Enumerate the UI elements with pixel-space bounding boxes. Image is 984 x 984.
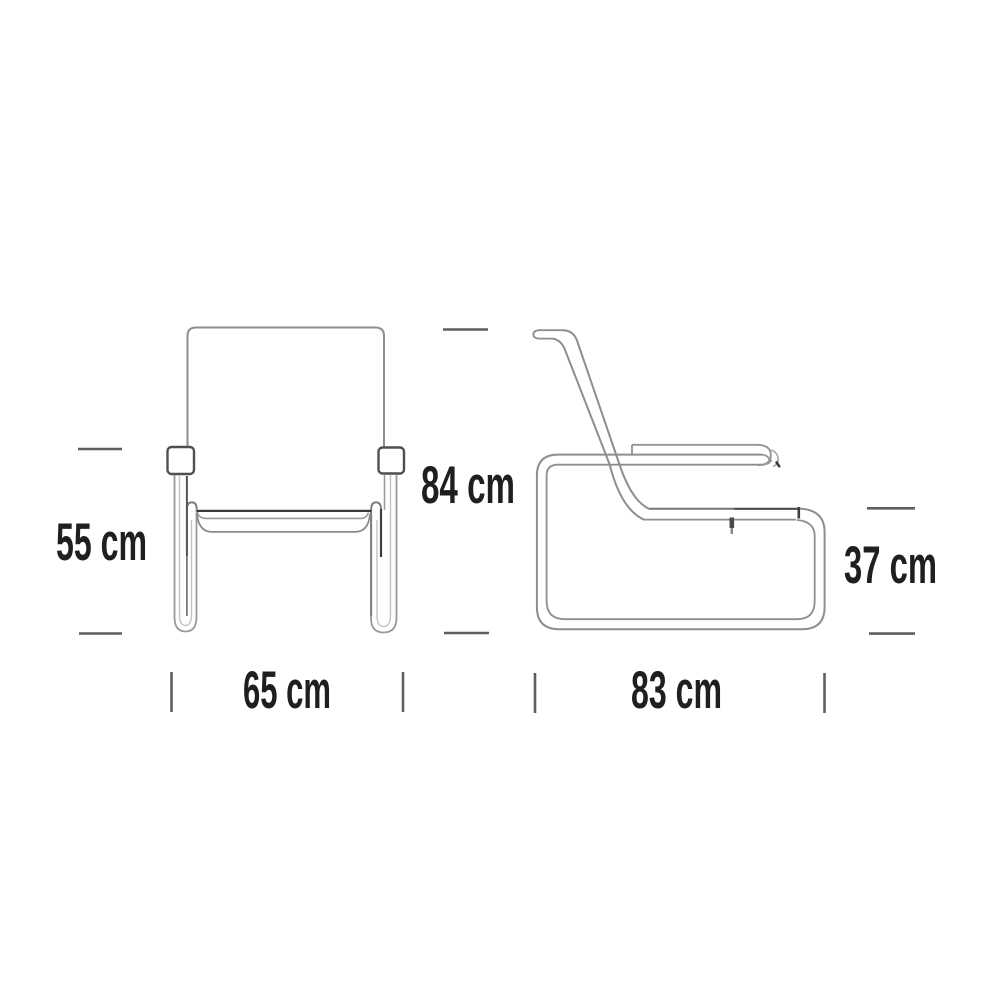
- svg-text:84 cm: 84 cm: [421, 456, 515, 515]
- svg-text:37 cm: 37 cm: [844, 536, 937, 595]
- svg-text:65 cm: 65 cm: [243, 661, 331, 720]
- svg-text:83 cm: 83 cm: [631, 661, 722, 720]
- svg-text:55 cm: 55 cm: [56, 513, 147, 572]
